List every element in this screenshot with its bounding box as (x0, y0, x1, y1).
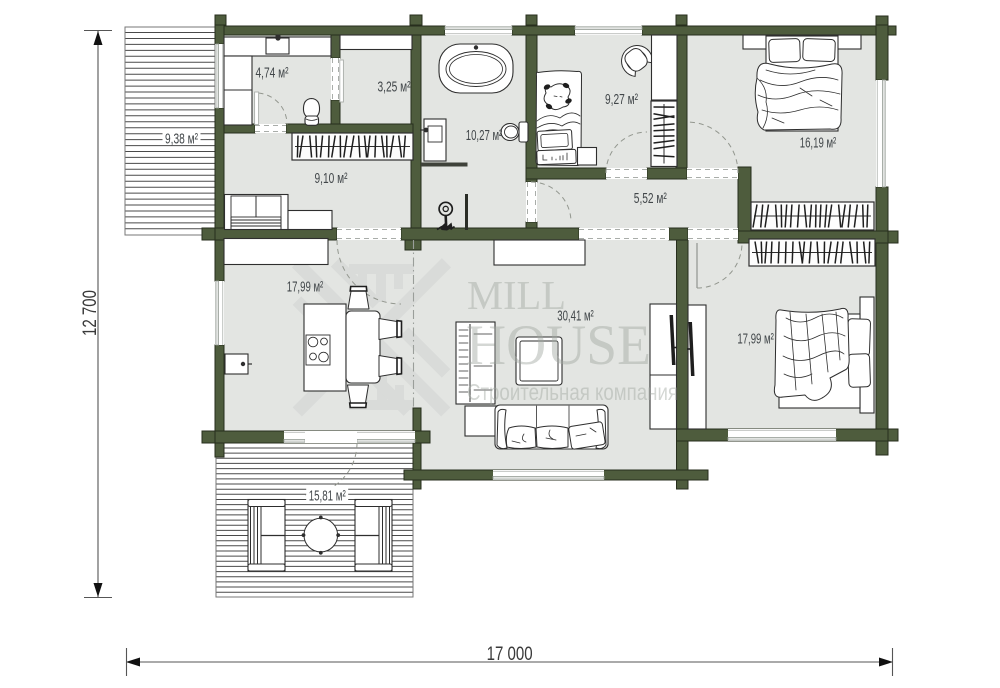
svg-text:MILL: MILL (467, 272, 566, 318)
svg-text:5,52 м²: 5,52 м² (634, 190, 667, 207)
svg-text:3,25 м²: 3,25 м² (378, 78, 411, 95)
svg-text:12 700: 12 700 (80, 290, 101, 336)
svg-text:9,27 м²: 9,27 м² (605, 91, 638, 108)
svg-text:4,74 м²: 4,74 м² (256, 64, 289, 81)
svg-text:10,27 м²: 10,27 м² (466, 127, 503, 144)
svg-text:30,41 м²: 30,41 м² (557, 308, 594, 325)
svg-text:17 000: 17 000 (487, 644, 533, 665)
svg-text:15,81 м²: 15,81 м² (309, 487, 346, 504)
svg-text:9,38 м²: 9,38 м² (165, 130, 198, 147)
svg-text:Строительная компания: Строительная компания (467, 379, 678, 405)
svg-text:16,19 м²: 16,19 м² (800, 134, 837, 151)
svg-text:17,99 м²: 17,99 м² (287, 279, 324, 296)
svg-text:9,10 м²: 9,10 м² (315, 170, 348, 187)
svg-text:17,99 м²: 17,99 м² (737, 331, 774, 348)
